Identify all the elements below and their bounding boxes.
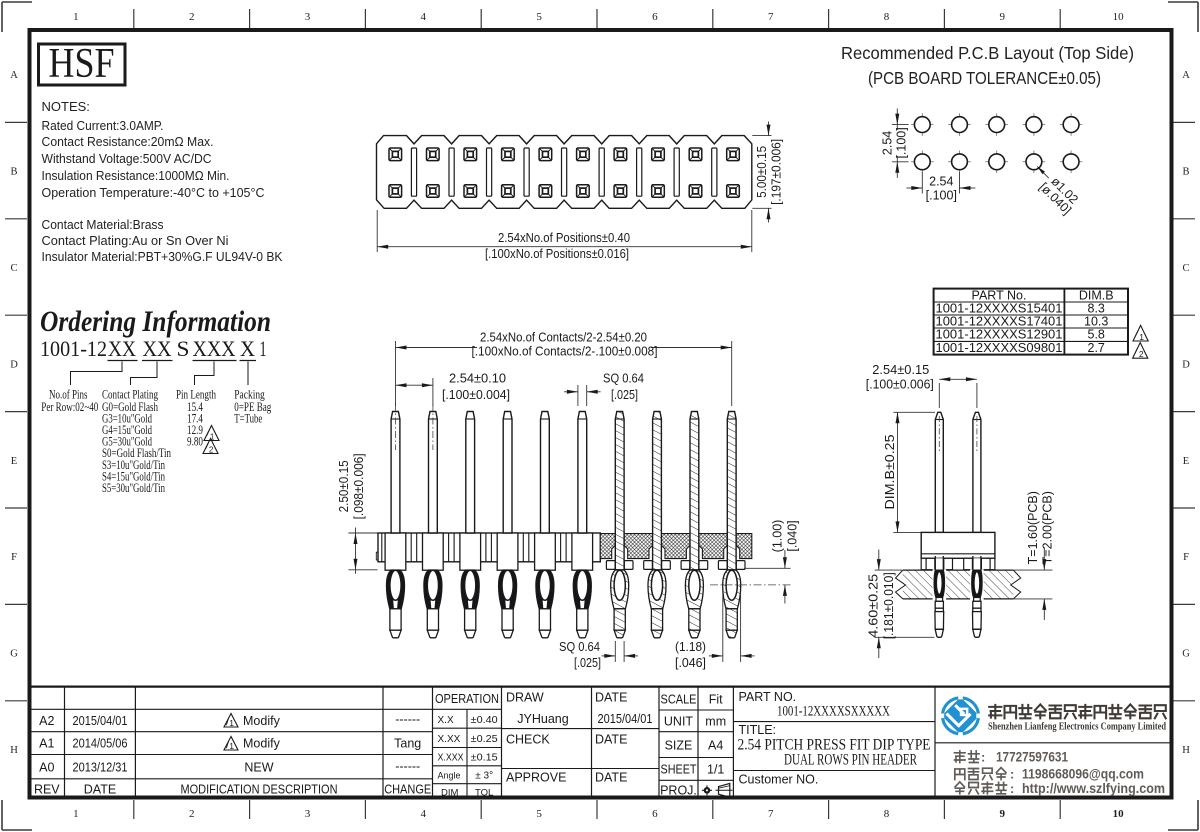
svg-text:Per Row:02~40: Per Row:02~40 — [41, 399, 98, 414]
svg-text:X.XX: X.XX — [438, 734, 461, 745]
svg-text:http://www.szlfying.com: http://www.szlfying.com — [1022, 781, 1165, 796]
svg-text:Insulation Resistance:1000MΩ: Insulation Resistance:1000MΩ Min. — [42, 168, 230, 183]
svg-text:[.100±0.006]: [.100±0.006] — [866, 378, 934, 392]
svg-text:8: 8 — [884, 11, 890, 23]
svg-text:C: C — [1182, 263, 1189, 274]
svg-text:1198668096@qq.com: 1198668096@qq.com — [1022, 767, 1144, 782]
svg-text:A1: A1 — [39, 737, 54, 751]
svg-text::: : — [1010, 781, 1014, 796]
svg-text:mm: mm — [705, 714, 726, 728]
svg-text:7: 7 — [768, 11, 774, 23]
svg-text:[.098±0.006]: [.098±0.006] — [352, 453, 366, 519]
svg-text:A: A — [1182, 70, 1190, 81]
svg-text:H: H — [10, 745, 18, 756]
svg-text:1: 1 — [260, 336, 267, 361]
svg-text:S: S — [177, 336, 190, 361]
svg-text:[.025]: [.025] — [611, 388, 638, 402]
svg-text:2.54xNo.of Contacts/2-2.54±0.: 2.54xNo.of Contacts/2-2.54±0.20 — [480, 331, 647, 345]
svg-text:1001-12XXXXS12901: 1001-12XXXXS12901 — [936, 328, 1063, 342]
svg-text:F: F — [1183, 552, 1189, 563]
svg-text:2014/05/06: 2014/05/06 — [73, 737, 128, 751]
svg-text:8.3: 8.3 — [1088, 302, 1105, 316]
svg-text:1: 1 — [229, 741, 234, 751]
svg-text:2: 2 — [189, 11, 195, 23]
svg-text:1/1: 1/1 — [707, 762, 724, 776]
svg-text:[.100±0.004]: [.100±0.004] — [442, 388, 510, 402]
svg-text:1: 1 — [73, 808, 79, 820]
svg-text:2: 2 — [1139, 349, 1144, 359]
svg-text:X.XXX: X.XXX — [438, 753, 464, 764]
svg-text:A0: A0 — [39, 761, 54, 775]
svg-text:TOL: TOL — [475, 788, 493, 799]
svg-text:3: 3 — [305, 11, 311, 23]
svg-text:2.54±0.15: 2.54±0.15 — [872, 363, 929, 377]
svg-text:[.100]: [.100] — [895, 127, 909, 158]
svg-text:7: 7 — [768, 808, 774, 820]
svg-text:1001-12XXXXS09801: 1001-12XXXXS09801 — [936, 341, 1063, 355]
svg-text:Ordering Information: Ordering Information — [40, 305, 271, 338]
svg-text:[.181±0.010]: [.181±0.010] — [882, 572, 896, 639]
svg-text:1001-12: 1001-12 — [40, 336, 107, 361]
svg-text:2.54xNo.of Positions±0.40: 2.54xNo.of Positions±0.40 — [498, 231, 630, 245]
svg-text:8: 8 — [884, 808, 890, 820]
svg-text:A2: A2 — [39, 714, 54, 728]
svg-text:PROJ.: PROJ. — [660, 783, 697, 797]
svg-text:10: 10 — [1113, 11, 1125, 23]
svg-text:2.7: 2.7 — [1088, 341, 1105, 355]
svg-text:PART NO.: PART NO. — [739, 690, 797, 704]
svg-text:C: C — [10, 263, 17, 274]
svg-text:NEW: NEW — [244, 761, 273, 775]
svg-text:UNIT: UNIT — [664, 714, 694, 728]
svg-text:SIZE: SIZE — [665, 738, 693, 752]
svg-text:HSF: HSF — [49, 41, 115, 87]
svg-text:[.040]: [.040] — [785, 520, 799, 551]
svg-text:9: 9 — [1000, 11, 1006, 23]
svg-text:S5=30u"Gold/Tin: S5=30u"Gold/Tin — [102, 480, 165, 495]
svg-text:A4: A4 — [708, 738, 723, 752]
svg-text:9: 9 — [1000, 808, 1006, 820]
svg-text:TITLE:: TITLE: — [739, 723, 777, 737]
svg-text:OPERATION: OPERATION — [435, 692, 499, 706]
svg-text:Recommended P.C.B Layout (T: Recommended P.C.B Layout (Top Side) — [841, 43, 1134, 63]
svg-text:------: ------ — [395, 760, 420, 774]
svg-text:Rated Current:3.0AMP.: Rated Current:3.0AMP. — [42, 118, 164, 133]
svg-text:1001-12XXXXS15401: 1001-12XXXXS15401 — [936, 302, 1063, 316]
svg-text:B: B — [10, 167, 17, 178]
svg-text:[.025]: [.025] — [574, 656, 601, 670]
svg-text:Angle: Angle — [438, 771, 461, 782]
svg-text:Withstand Voltage:500V AC/DC: Withstand Voltage:500V AC/DC — [42, 151, 212, 166]
svg-text:Contact Material:Brass: Contact Material:Brass — [42, 217, 164, 232]
svg-text:B: B — [1182, 167, 1189, 178]
svg-text:10: 10 — [1113, 808, 1125, 820]
svg-text:D: D — [10, 359, 18, 370]
svg-text:JYHuang: JYHuang — [517, 712, 568, 726]
svg-text:APPROVE: APPROVE — [506, 771, 566, 785]
svg-text:D: D — [1182, 359, 1190, 370]
svg-text:5: 5 — [536, 808, 542, 820]
svg-text:1001-12XXXXS17401: 1001-12XXXXS17401 — [936, 315, 1063, 329]
svg-text:1001-12XXXXSXXXXX: 1001-12XXXXSXXXXX — [777, 703, 890, 719]
svg-text:F: F — [11, 552, 17, 563]
svg-text:[.100xNo.of Contacts/2-.100±0: [.100xNo.of Contacts/2-.100±0.008] — [472, 344, 658, 358]
svg-text:Modify: Modify — [243, 714, 281, 728]
svg-text:G: G — [1182, 649, 1190, 660]
svg-text:DRAW: DRAW — [506, 691, 544, 705]
svg-text:1: 1 — [1139, 332, 1144, 342]
svg-text:DATE: DATE — [595, 733, 627, 747]
svg-text:1: 1 — [73, 11, 79, 23]
svg-text:2.54±0.10: 2.54±0.10 — [449, 371, 506, 385]
svg-text:17727597631: 17727597631 — [996, 750, 1068, 765]
svg-text::: : — [981, 750, 985, 765]
svg-text:2015/04/01: 2015/04/01 — [598, 712, 653, 726]
svg-text:SCALE: SCALE — [661, 692, 697, 706]
svg-text:(PCB BOARD TOLERANCE±0.05): (PCB BOARD TOLERANCE±0.05) — [868, 68, 1101, 88]
svg-text:DIM.B: DIM.B — [1079, 288, 1114, 302]
svg-text:10.3: 10.3 — [1084, 315, 1108, 329]
svg-text:DUAL ROWS PIN HEADER: DUAL ROWS PIN HEADER — [784, 751, 917, 768]
svg-text:MODIFICATION DESCRIPTION: MODIFICATION DESCRIPTION — [181, 783, 338, 797]
svg-text:SHEET: SHEET — [661, 762, 697, 776]
svg-text:3: 3 — [305, 808, 311, 820]
svg-text:CHECK: CHECK — [506, 733, 550, 747]
svg-text:±0.15: ±0.15 — [471, 752, 498, 764]
svg-text:(1.00): (1.00) — [770, 520, 784, 553]
svg-text:5.8: 5.8 — [1088, 328, 1105, 342]
svg-text:XXX: XXX — [193, 336, 236, 361]
svg-text:Modify: Modify — [243, 737, 281, 751]
svg-text:E: E — [11, 456, 17, 467]
svg-text:X: X — [240, 336, 255, 361]
svg-text:[.046]: [.046] — [675, 656, 706, 670]
svg-text:± 3°: ± 3° — [475, 771, 493, 782]
svg-text:DATE: DATE — [84, 783, 116, 797]
svg-text:Tang: Tang — [394, 737, 421, 751]
svg-text:2: 2 — [209, 445, 214, 454]
svg-text:X.X: X.X — [438, 715, 454, 726]
svg-text:2013/12/31: 2013/12/31 — [73, 761, 128, 775]
svg-text:±0.25: ±0.25 — [471, 733, 498, 745]
svg-text:NOTES:: NOTES: — [42, 99, 90, 114]
svg-text:DIM: DIM — [441, 788, 459, 799]
svg-text:XX: XX — [143, 336, 172, 361]
svg-text:Contact Resistance:20mΩ Max.: Contact Resistance:20mΩ Max. — [42, 134, 214, 149]
svg-text:DATE: DATE — [595, 771, 627, 785]
svg-text:2.54: 2.54 — [880, 131, 894, 155]
svg-text:9.80: 9.80 — [187, 434, 203, 449]
svg-text:[.197±0.006]: [.197±0.006] — [770, 139, 784, 205]
svg-text:4: 4 — [421, 11, 427, 23]
svg-text:XX: XX — [108, 336, 136, 361]
svg-text:E: E — [1183, 456, 1189, 467]
svg-text:[.100xNo.of Positions±0.016]: [.100xNo.of Positions±0.016] — [485, 247, 629, 261]
svg-text:REV: REV — [34, 783, 60, 797]
svg-text:(1.18): (1.18) — [675, 640, 706, 654]
svg-text:2015/04/01: 2015/04/01 — [73, 714, 128, 728]
svg-text:G: G — [10, 649, 18, 660]
svg-text:4.60±0.25: 4.60±0.25 — [867, 574, 881, 638]
svg-text:SQ 0.64: SQ 0.64 — [603, 371, 644, 385]
svg-text:SQ 0.64: SQ 0.64 — [559, 640, 600, 654]
svg-text:Fit: Fit — [709, 692, 723, 706]
svg-text::: : — [1010, 767, 1014, 782]
svg-text:2.50±0.15: 2.50±0.15 — [337, 460, 351, 512]
svg-text:[.100]: [.100] — [926, 188, 957, 202]
svg-text:T=2.00(PCB): T=2.00(PCB) — [1040, 491, 1054, 564]
svg-text:5.00±0.15: 5.00±0.15 — [755, 146, 769, 198]
svg-text:1: 1 — [229, 718, 234, 728]
svg-text:6: 6 — [652, 11, 658, 23]
svg-text:±0.40: ±0.40 — [471, 714, 498, 726]
svg-text:CHANGE: CHANGE — [384, 783, 431, 797]
svg-text:Insulator Material:PBT+30%G.F: Insulator Material:PBT+30%G.F UL94V-0 BK — [42, 249, 283, 264]
svg-text:Shenzhen Lianfeng Electronics: Shenzhen Lianfeng Electronics Company Li… — [988, 722, 1166, 733]
svg-text:2: 2 — [189, 808, 195, 820]
svg-text:6: 6 — [652, 808, 658, 820]
svg-text:4: 4 — [421, 808, 427, 820]
svg-text:5: 5 — [536, 11, 542, 23]
svg-text:Customer NO.: Customer NO. — [739, 772, 819, 786]
svg-text:DATE: DATE — [595, 691, 627, 705]
svg-text:H: H — [1182, 745, 1190, 756]
svg-text:2.54: 2.54 — [929, 175, 953, 189]
svg-text:A: A — [10, 70, 18, 81]
svg-text:Operation Temperature:-40°C: Operation Temperature:-40°C to +105°C — [42, 185, 265, 200]
svg-text:T=1.60(PCB): T=1.60(PCB) — [1026, 491, 1040, 564]
svg-text:T=Tube: T=Tube — [234, 410, 262, 425]
svg-text:------: ------ — [395, 713, 420, 727]
svg-text:PART No.: PART No. — [972, 288, 1027, 302]
svg-text:Contact Plating:Au or Sn O: Contact Plating:Au or Sn Over Ni — [42, 233, 229, 248]
svg-text:DIM.B±0.25: DIM.B±0.25 — [883, 434, 897, 509]
